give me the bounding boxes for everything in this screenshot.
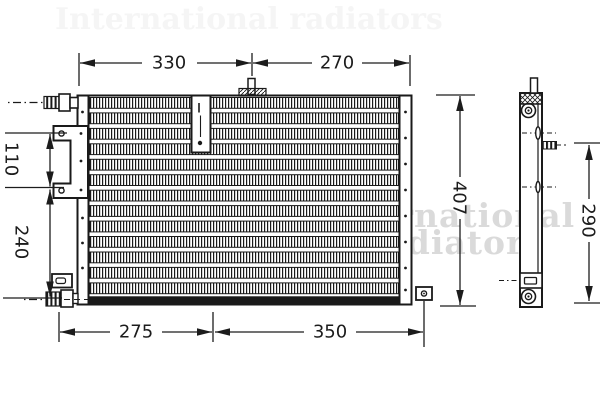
right-tank [400,96,412,305]
side-stud [543,142,567,150]
dimension-407: 407 [436,95,476,306]
side-view [499,78,566,307]
dim-label-350: 350 [313,322,347,343]
dimension-240: 240 [3,190,88,300]
dim-label-270: 270 [320,53,354,74]
dimension-290: 290 [574,143,600,303]
inlet-fitting [8,94,78,111]
dim-label-240: 240 [11,225,32,259]
core-fins [89,96,400,305]
receiver-tube [192,96,211,153]
top-pin [239,79,266,97]
dim-label-330: 330 [152,53,186,74]
side-bottom-slot [499,273,542,288]
bottom-left-tab [52,274,72,288]
dim-label-290: 290 [578,203,599,237]
bottom-right-tab [416,287,432,300]
condenser-diagram: 330 270 110 [0,0,600,400]
dim-label-407: 407 [449,181,470,215]
dim-label-110: 110 [1,142,22,176]
dimension-275: 275 [59,312,213,343]
front-view [8,79,432,308]
dimension-350: 350 [215,301,424,347]
dimension-330: 330 [79,53,252,87]
dimension-270: 270 [253,53,410,87]
dim-label-275: 275 [119,322,153,343]
technical-drawing-canvas: International radiators International ra… [0,0,600,400]
